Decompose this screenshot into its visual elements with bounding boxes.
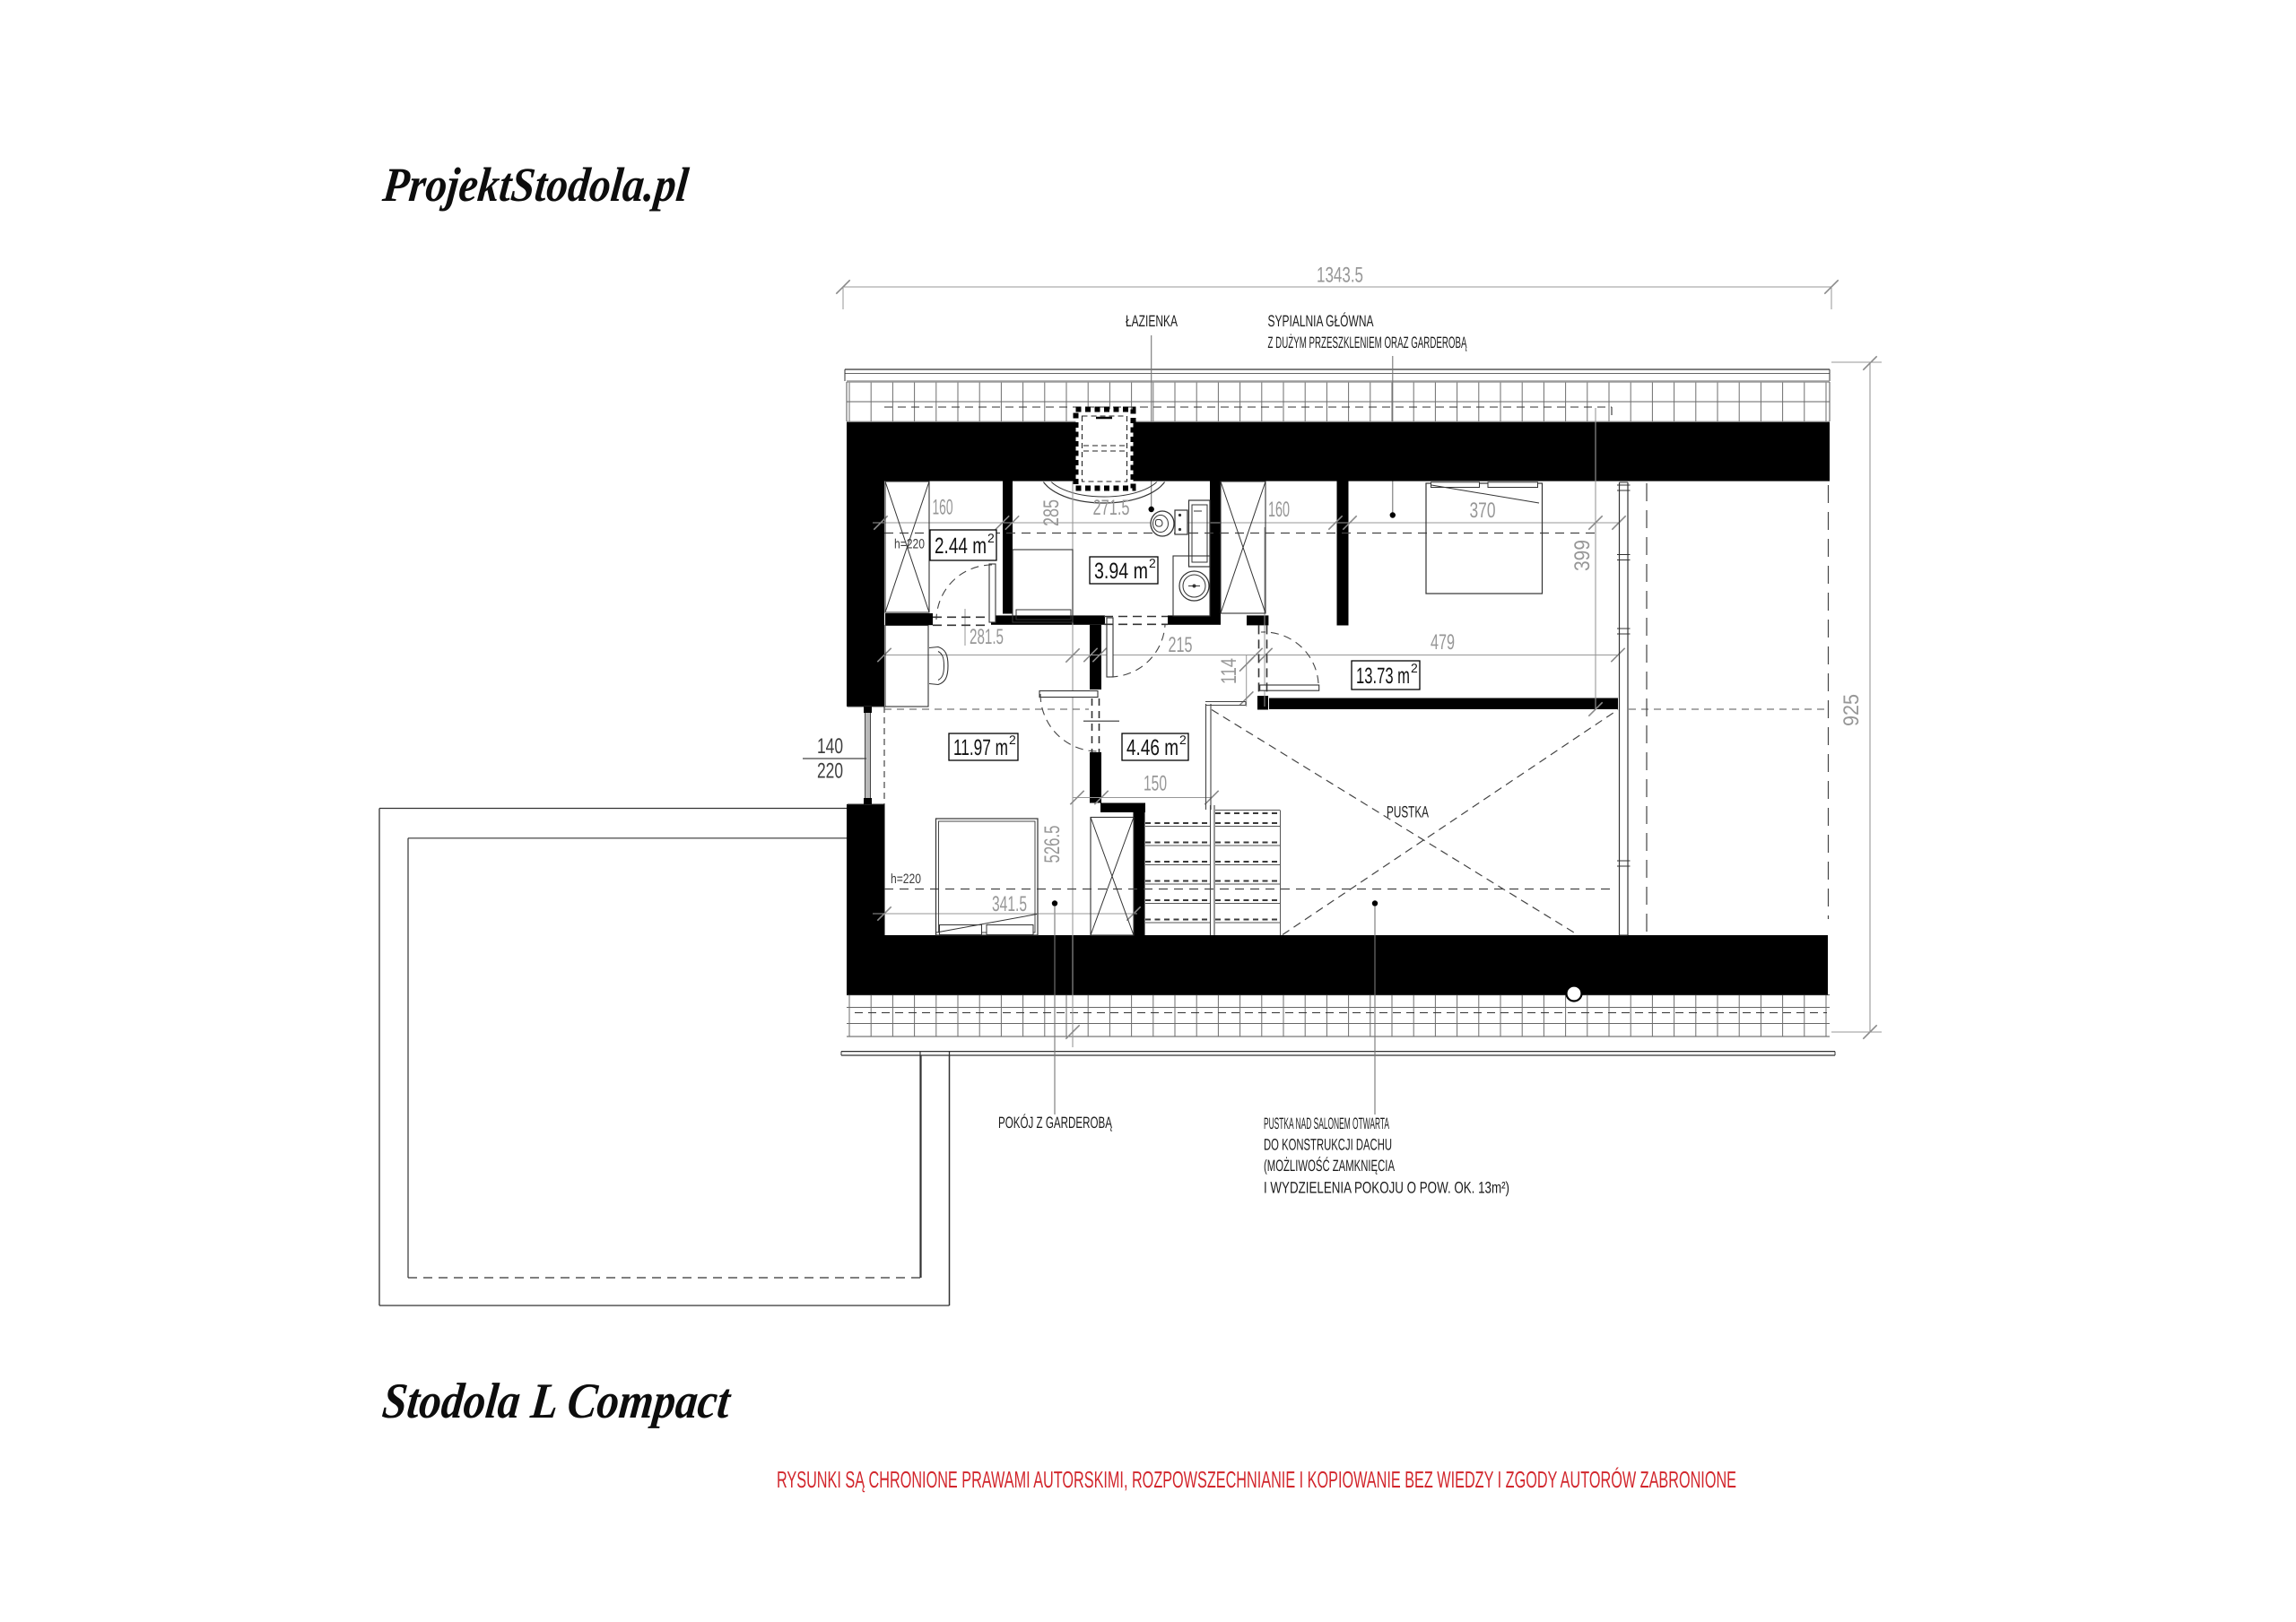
svg-text:2.44 m: 2.44 m <box>935 533 987 559</box>
svg-text:ProjektStodola.pl: ProjektStodola.pl <box>379 158 691 212</box>
svg-text:PUSTKA: PUSTKA <box>1387 803 1429 821</box>
svg-text:281.5: 281.5 <box>970 625 1004 649</box>
svg-text:925: 925 <box>1839 694 1864 726</box>
svg-text:I WYDZIELENIA POKOJU O POW. OK: I WYDZIELENIA POKOJU O POW. OK. 13m²) <box>1264 1179 1509 1197</box>
svg-text:160: 160 <box>933 496 953 520</box>
svg-text:271.5: 271.5 <box>1093 496 1130 520</box>
svg-text:150: 150 <box>1144 772 1167 796</box>
svg-text:h=220: h=220 <box>894 537 925 552</box>
svg-text:285: 285 <box>1039 499 1064 526</box>
svg-text:Stodola L Compact: Stodola L Compact <box>379 1374 734 1429</box>
svg-text:2: 2 <box>1179 733 1187 747</box>
svg-text:140: 140 <box>817 734 843 759</box>
svg-text:SYPIALNIA GŁÓWNA: SYPIALNIA GŁÓWNA <box>1268 312 1374 330</box>
svg-text:2: 2 <box>1149 556 1156 570</box>
svg-text:3.94 m: 3.94 m <box>1094 559 1148 584</box>
svg-text:2: 2 <box>987 531 995 545</box>
svg-text:11.97 m: 11.97 m <box>953 735 1008 760</box>
svg-text:POKÓJ Z GARDEROBĄ: POKÓJ Z GARDEROBĄ <box>998 1114 1113 1132</box>
svg-text:(MOŻLIWOŚĆ ZAMKNIĘCIA: (MOŻLIWOŚĆ ZAMKNIĘCIA <box>1264 1156 1395 1175</box>
svg-text:ŁAZIENKA: ŁAZIENKA <box>1126 312 1178 330</box>
svg-text:399: 399 <box>1570 540 1595 571</box>
svg-text:160: 160 <box>1268 498 1290 522</box>
svg-text:4.46 m: 4.46 m <box>1126 735 1178 760</box>
svg-text:1343.5: 1343.5 <box>1317 264 1363 288</box>
svg-text:2: 2 <box>1009 733 1016 747</box>
svg-text:2: 2 <box>1411 661 1418 675</box>
svg-text:526.5: 526.5 <box>1040 826 1065 863</box>
svg-text:RYSUNKI SĄ CHRONIONE PRAWAMI A: RYSUNKI SĄ CHRONIONE PRAWAMI AUTORSKIMI,… <box>777 1466 1736 1493</box>
svg-text:370: 370 <box>1470 499 1496 523</box>
svg-text:215: 215 <box>1169 633 1193 657</box>
svg-text:13.73 m: 13.73 m <box>1356 664 1410 689</box>
svg-text:479: 479 <box>1431 630 1455 655</box>
svg-text:220: 220 <box>817 759 843 784</box>
svg-text:DO KONSTRUKCJI DACHU: DO KONSTRUKCJI DACHU <box>1264 1136 1392 1154</box>
svg-text:PUSTKA NAD SALONEM OTWARTA: PUSTKA NAD SALONEM OTWARTA <box>1264 1115 1389 1132</box>
svg-text:341.5: 341.5 <box>992 892 1027 916</box>
svg-text:h=220: h=220 <box>891 872 921 887</box>
svg-text:114: 114 <box>1217 658 1241 684</box>
svg-text:Z DUŻYM PRZESZKLENIEM ORAZ GAR: Z DUŻYM PRZESZKLENIEM ORAZ GARDEROBĄ <box>1268 334 1468 351</box>
